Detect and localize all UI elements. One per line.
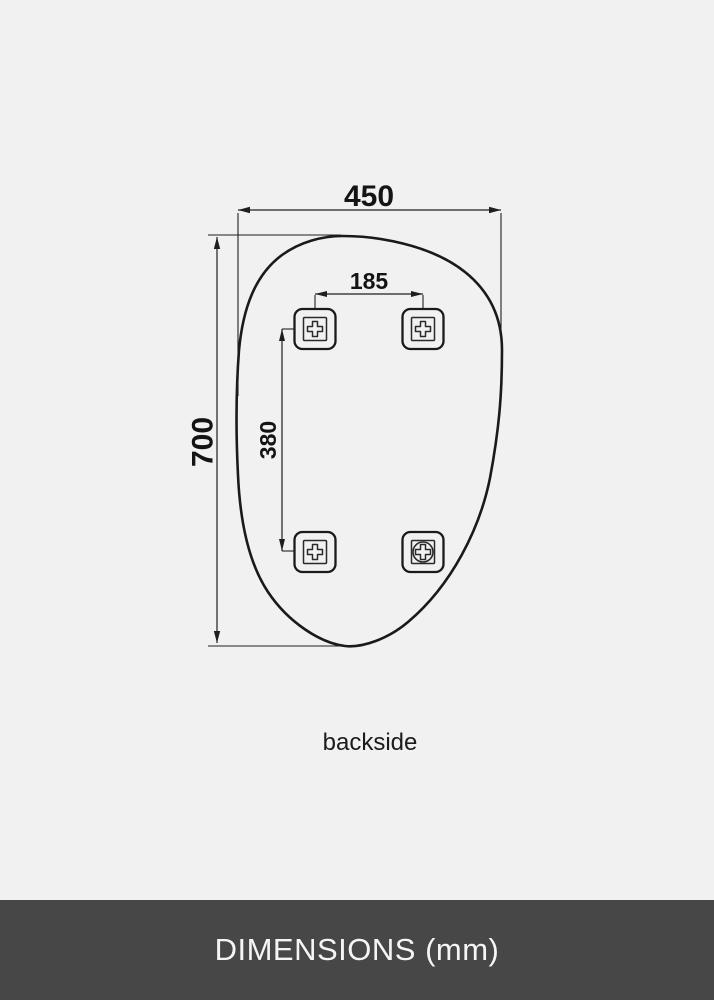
arrowhead-left xyxy=(238,207,250,213)
bracket-frame xyxy=(295,532,336,572)
bracket-frame xyxy=(403,309,444,349)
mount-bracket-top-right xyxy=(403,309,444,349)
arrowhead-bottom xyxy=(279,539,285,551)
arrowhead-right xyxy=(411,291,423,297)
diagram-canvas: 450 700 185 xyxy=(0,0,714,900)
mount-bracket-top-left xyxy=(295,309,336,349)
bracket-frame xyxy=(295,309,336,349)
bracket-spacing-vertical-value: 380 xyxy=(255,421,281,459)
bracket-spacing-horizontal-dimension: 185 xyxy=(315,268,423,308)
width-dimension-value: 450 xyxy=(344,180,394,213)
bracket-spacing-horizontal-value: 185 xyxy=(350,268,389,294)
height-dimension-value: 700 xyxy=(187,417,220,467)
arrowhead-top xyxy=(214,237,220,249)
dimension-diagram: 450 700 185 xyxy=(0,0,714,900)
arrowhead-top xyxy=(279,329,285,341)
arrowhead-bottom xyxy=(214,631,220,643)
arrowhead-right xyxy=(489,207,501,213)
footer-bar: DIMENSIONS (mm) xyxy=(0,900,714,1000)
mount-bracket-bottom-left xyxy=(295,532,336,572)
arrowhead-left xyxy=(315,291,327,297)
bracket-spacing-vertical-dimension: 380 xyxy=(255,329,294,551)
backside-label: backside xyxy=(323,729,418,756)
footer-title: DIMENSIONS (mm) xyxy=(215,932,500,968)
mount-bracket-bottom-right xyxy=(403,532,444,572)
bracket-frame xyxy=(403,532,444,572)
product-dimension-page: 450 700 185 xyxy=(0,0,714,1000)
